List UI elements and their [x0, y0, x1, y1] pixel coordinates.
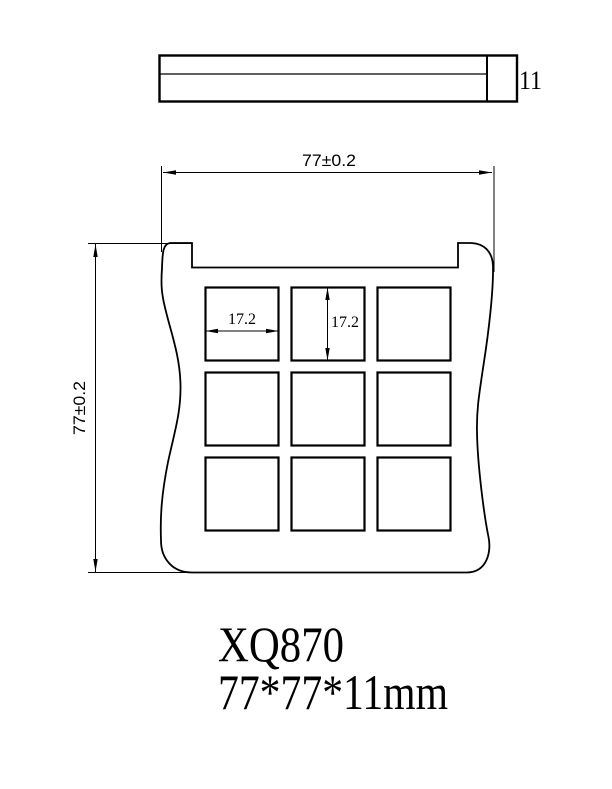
- pan-cell-r2c3: [378, 373, 451, 446]
- plan-view: 17.2 17.2: [161, 243, 493, 573]
- pan-width-arrow-left: [206, 329, 219, 333]
- pan-height-dimension: 17.2: [325, 288, 359, 361]
- pan-width-dimension: 17.2: [206, 311, 279, 333]
- height-dimension-label: 77±0.2: [70, 381, 89, 435]
- side-view-outline: [160, 56, 518, 102]
- pan-cell-r3c3: [378, 458, 451, 531]
- pan-cell-r1c3: [378, 288, 451, 361]
- height-dimension: 77±0.2: [70, 244, 196, 573]
- pan-cell-r3c1: [206, 458, 279, 531]
- pan-height-arrow-bottom: [325, 348, 329, 361]
- pan-cell-r2c1: [206, 373, 279, 446]
- pan-cell-r2c2: [292, 373, 365, 446]
- side-view: 11: [160, 56, 543, 102]
- pan-height-arrow-top: [325, 288, 329, 301]
- width-dimension: 77±0.2: [162, 151, 495, 272]
- height-dim-arrow-top: [93, 244, 97, 257]
- width-dimension-label: 77±0.2: [302, 151, 356, 170]
- overall-size: 77*77*11mm: [218, 664, 448, 720]
- height-dim-arrow-bottom: [93, 559, 97, 572]
- thickness-dimension-label: 11: [519, 66, 542, 95]
- technical-drawing-page: 11 77±0.2 77±0.2: [0, 0, 612, 789]
- pan-height-dimension-label: 17.2: [331, 314, 359, 331]
- palette-technical-drawing: 11 77±0.2 77±0.2: [0, 0, 612, 789]
- pan-width-arrow-right: [266, 329, 279, 333]
- title-block: XQ870 77*77*11mm: [218, 616, 448, 720]
- width-dim-arrow-right: [479, 170, 492, 175]
- pan-width-dimension-label: 17.2: [228, 311, 256, 328]
- width-dim-arrow-left: [163, 170, 176, 175]
- pan-cell-r3c2: [292, 458, 365, 531]
